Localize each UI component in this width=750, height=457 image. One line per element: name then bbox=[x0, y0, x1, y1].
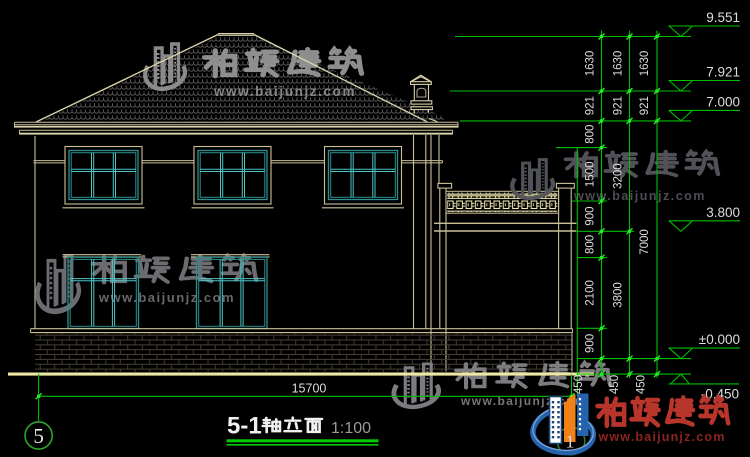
svg-text:450: 450 bbox=[636, 375, 648, 394]
svg-text:921: 921 bbox=[585, 96, 597, 115]
svg-text:921: 921 bbox=[639, 96, 651, 115]
svg-text:7.921: 7.921 bbox=[706, 65, 740, 80]
svg-text:800: 800 bbox=[585, 235, 597, 254]
svg-text:www.baijunjz.com: www.baijunjz.com bbox=[98, 290, 235, 305]
svg-text:www.baijunjz.com: www.baijunjz.com bbox=[597, 430, 725, 444]
svg-text:450: 450 bbox=[609, 375, 621, 394]
svg-text:www.baijunjz.com: www.baijunjz.com bbox=[213, 84, 356, 99]
svg-text:7000: 7000 bbox=[639, 229, 651, 255]
svg-text:15700: 15700 bbox=[292, 382, 327, 396]
svg-text:±0.000: ±0.000 bbox=[699, 332, 740, 347]
svg-text:7.000: 7.000 bbox=[706, 94, 740, 109]
svg-text:900: 900 bbox=[585, 334, 597, 353]
svg-text:3200: 3200 bbox=[613, 163, 625, 189]
svg-text:1: 1 bbox=[566, 432, 575, 452]
svg-text:900: 900 bbox=[585, 207, 597, 226]
svg-text:1630: 1630 bbox=[639, 51, 651, 77]
svg-text:2100: 2100 bbox=[585, 280, 597, 306]
svg-text:9.551: 9.551 bbox=[706, 10, 740, 25]
svg-text:3800: 3800 bbox=[613, 282, 625, 308]
svg-text:5: 5 bbox=[33, 424, 44, 448]
svg-text:3.800: 3.800 bbox=[706, 205, 740, 220]
svg-text:921: 921 bbox=[613, 96, 625, 115]
svg-text:450: 450 bbox=[573, 375, 585, 394]
svg-text:1630: 1630 bbox=[613, 51, 625, 77]
svg-text:1500: 1500 bbox=[585, 162, 597, 188]
svg-text:5-1: 5-1 bbox=[227, 413, 262, 440]
svg-text:800: 800 bbox=[585, 125, 597, 144]
svg-text:1:100: 1:100 bbox=[331, 420, 371, 437]
svg-text:1630: 1630 bbox=[585, 51, 597, 77]
